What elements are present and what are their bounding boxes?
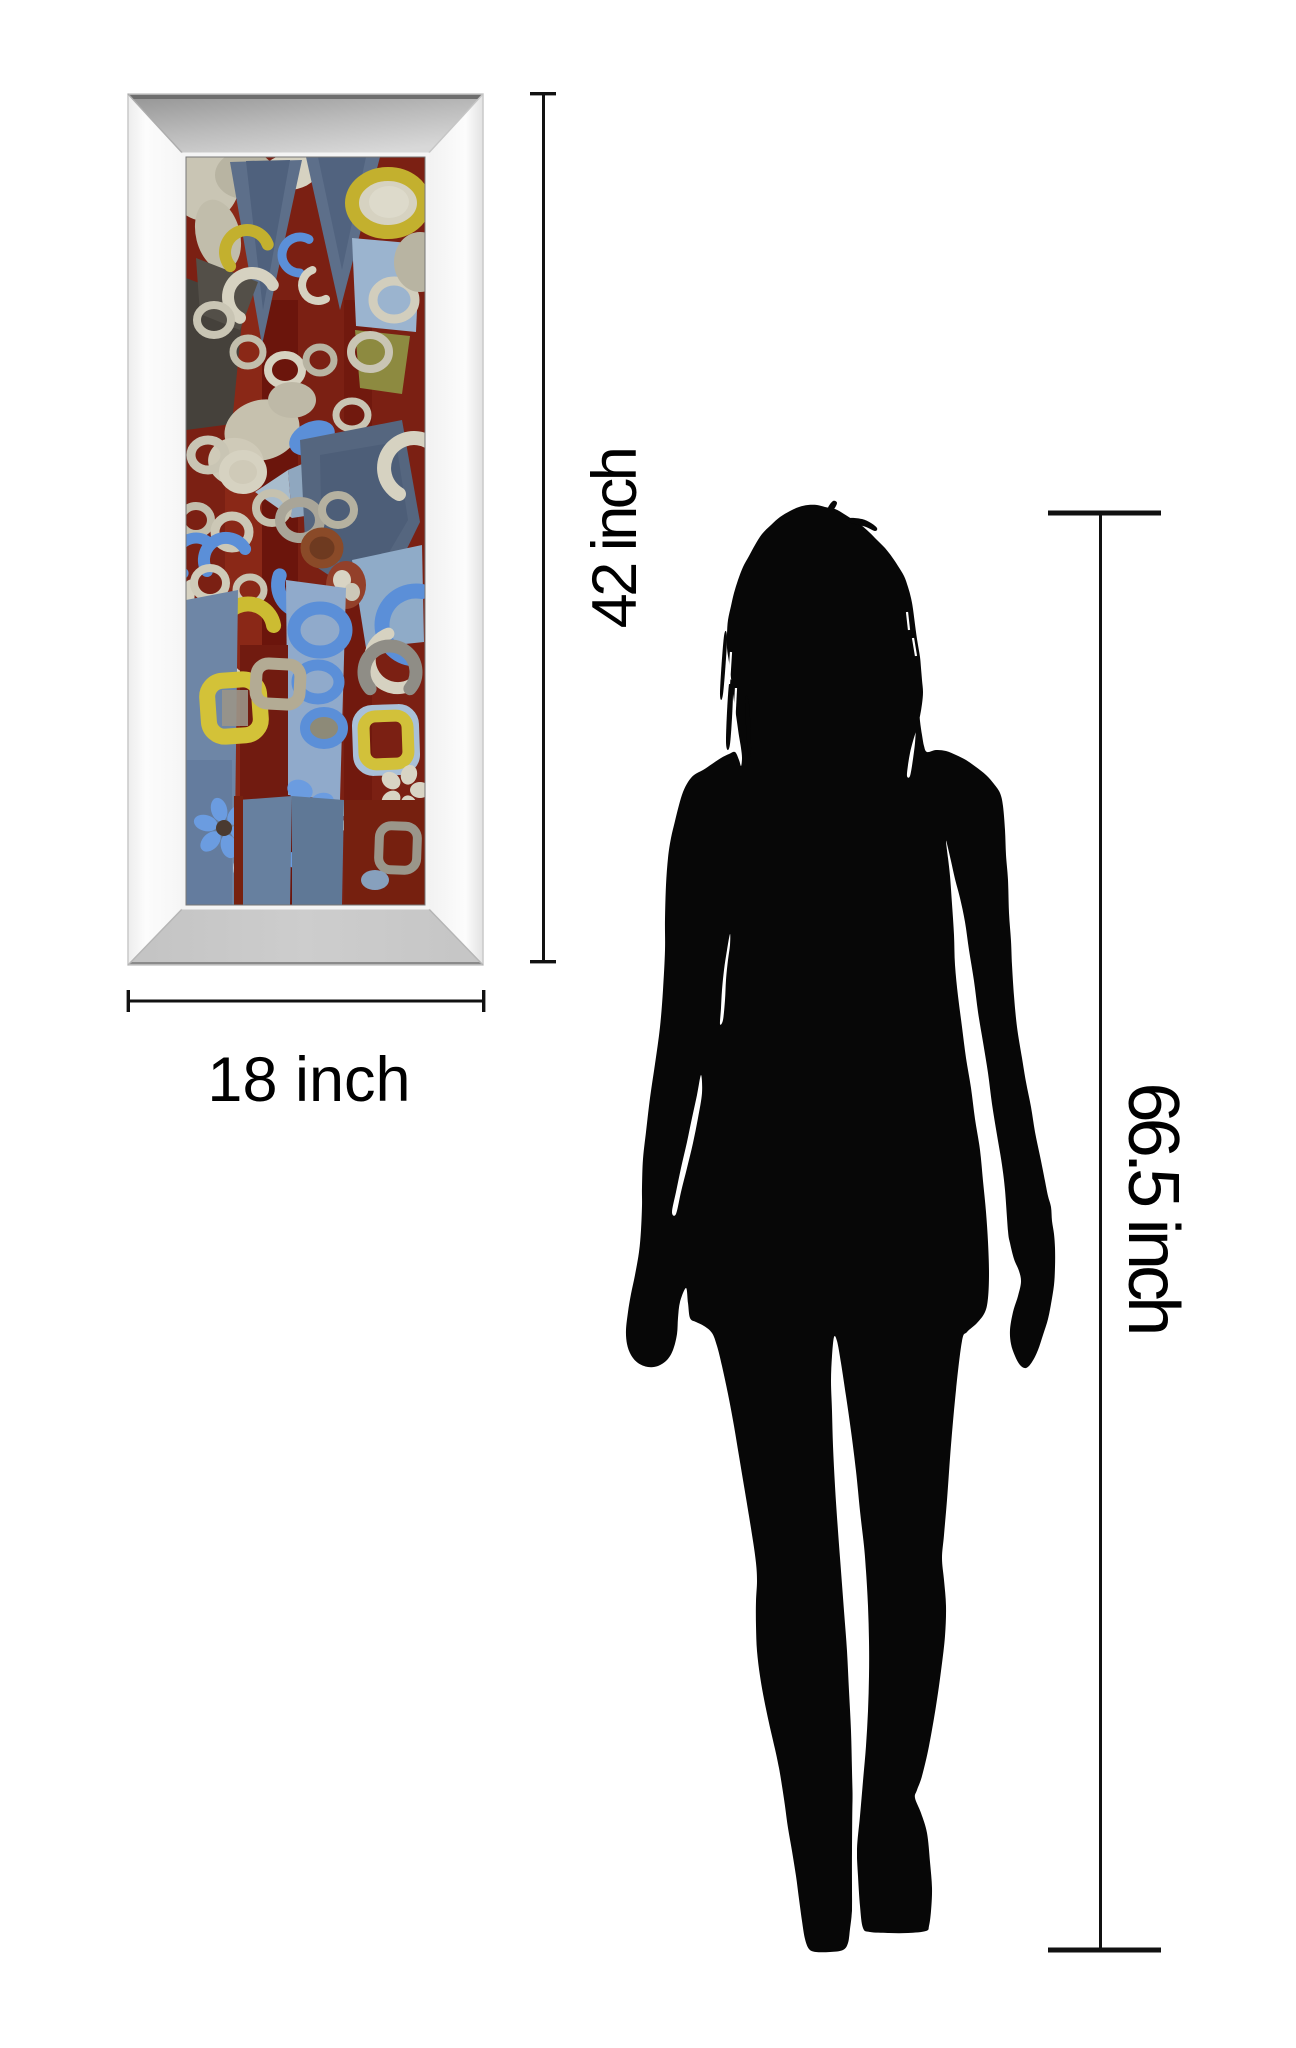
svg-text:42 inch: 42 inch: [580, 450, 650, 629]
svg-text:18 inch: 18 inch: [207, 1045, 410, 1115]
svg-text:66.5 inch: 66.5 inch: [1113, 1082, 1193, 1332]
